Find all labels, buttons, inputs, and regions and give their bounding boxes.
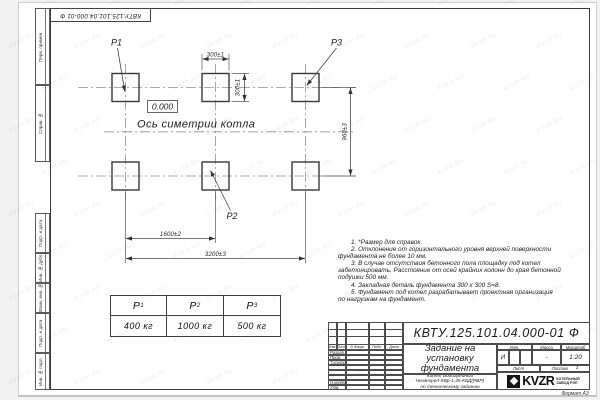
tb-cell	[369, 385, 385, 390]
kvzr-logo-caption: КОТЕЛЬНЫЙ ЗАВОД РЭП	[556, 377, 579, 385]
load-table-value: 500 кг	[223, 315, 281, 337]
tb-cell	[346, 385, 369, 390]
kvzr-caption-line: ЗАВОД РЭП	[556, 381, 579, 385]
kvzr-emblem-icon	[507, 375, 520, 388]
tb-cell	[520, 350, 532, 365]
tb-title-line: фундамента	[421, 364, 479, 374]
load-table-value: 400 кг	[110, 315, 167, 337]
tb-doc-number: КВТУ.125.101.04.000-01 Ф	[403, 322, 590, 344]
tb-sheets-label: Листов	[552, 366, 568, 371]
scanned-drawing-page: { "sheet": { "doc_number": "КВТУ.125.101…	[0, 0, 600, 400]
load-table-header: P3	[223, 295, 281, 316]
dim-1600: 1600±2	[160, 232, 182, 238]
load-symbol: P	[189, 300, 197, 312]
tb-sheets: Листов 1	[540, 365, 590, 372]
elevation-value: 0.000	[152, 102, 174, 112]
note-line: 5. Фундамент под котел разрабатывает про…	[338, 289, 592, 296]
notes-block: 1. *Размер для справок. 2. Отклонение от…	[338, 239, 592, 303]
kvzr-emblem-inner	[510, 377, 518, 385]
dim-300-top: 300±1	[207, 53, 225, 59]
tb-cell	[509, 350, 520, 365]
dim-3200: 3200±3	[205, 252, 227, 258]
load-table-value: 1000 кг	[166, 315, 224, 337]
tb-sheets-value: 1	[576, 366, 579, 371]
tb-title: Задание на установку фундамента	[403, 344, 497, 374]
tb-lit-value: И	[497, 350, 509, 365]
format-label: Формат А3	[550, 391, 600, 397]
centerlines	[78, 64, 356, 202]
note-line: подушки 500 мм.	[338, 274, 592, 281]
kvzr-logo-text: KVZR	[522, 374, 554, 388]
axis-of-symmetry-label: Ось симетрии котла	[137, 119, 255, 131]
point-label-p2: P2	[227, 211, 238, 221]
load-table-header: P1	[110, 295, 167, 316]
dim-960: 960±3	[343, 123, 349, 141]
load-symbol: P	[246, 300, 254, 312]
load-subscript: 2	[197, 303, 201, 309]
tb-subtitle: Котел Водогрейный Heatexpert-КВр-1,45-КБ…	[403, 374, 497, 390]
tb-cell	[385, 385, 403, 390]
load-symbol: P	[133, 300, 141, 312]
tb-subtitle-line: по техническому заданию	[420, 385, 479, 390]
tb-scale-value: 1:20	[561, 350, 590, 365]
tb-logo-area: KVZR КОТЕЛЬНЫЙ ЗАВОД РЭП	[497, 372, 590, 390]
point-label-p3: P3	[331, 38, 342, 48]
dim-300-side: 300±1	[236, 79, 242, 97]
load-subscript: 1	[140, 303, 144, 309]
load-table: P1 P2 P3 400 кг 1000 кг 500 кг	[110, 295, 281, 337]
load-subscript: 3	[254, 303, 258, 309]
note-line: по нагрузкам на фундамент.	[338, 296, 592, 303]
tb-sheet-label: Лист	[497, 365, 540, 372]
point-label-p1: P1	[111, 38, 122, 48]
tb-row-utv: Утв.	[328, 385, 346, 390]
load-table-header: P2	[166, 295, 224, 316]
tb-mass-value: -	[532, 350, 561, 365]
note-line: 4. Закладная деталь фундамента 300 х 300…	[338, 282, 592, 289]
